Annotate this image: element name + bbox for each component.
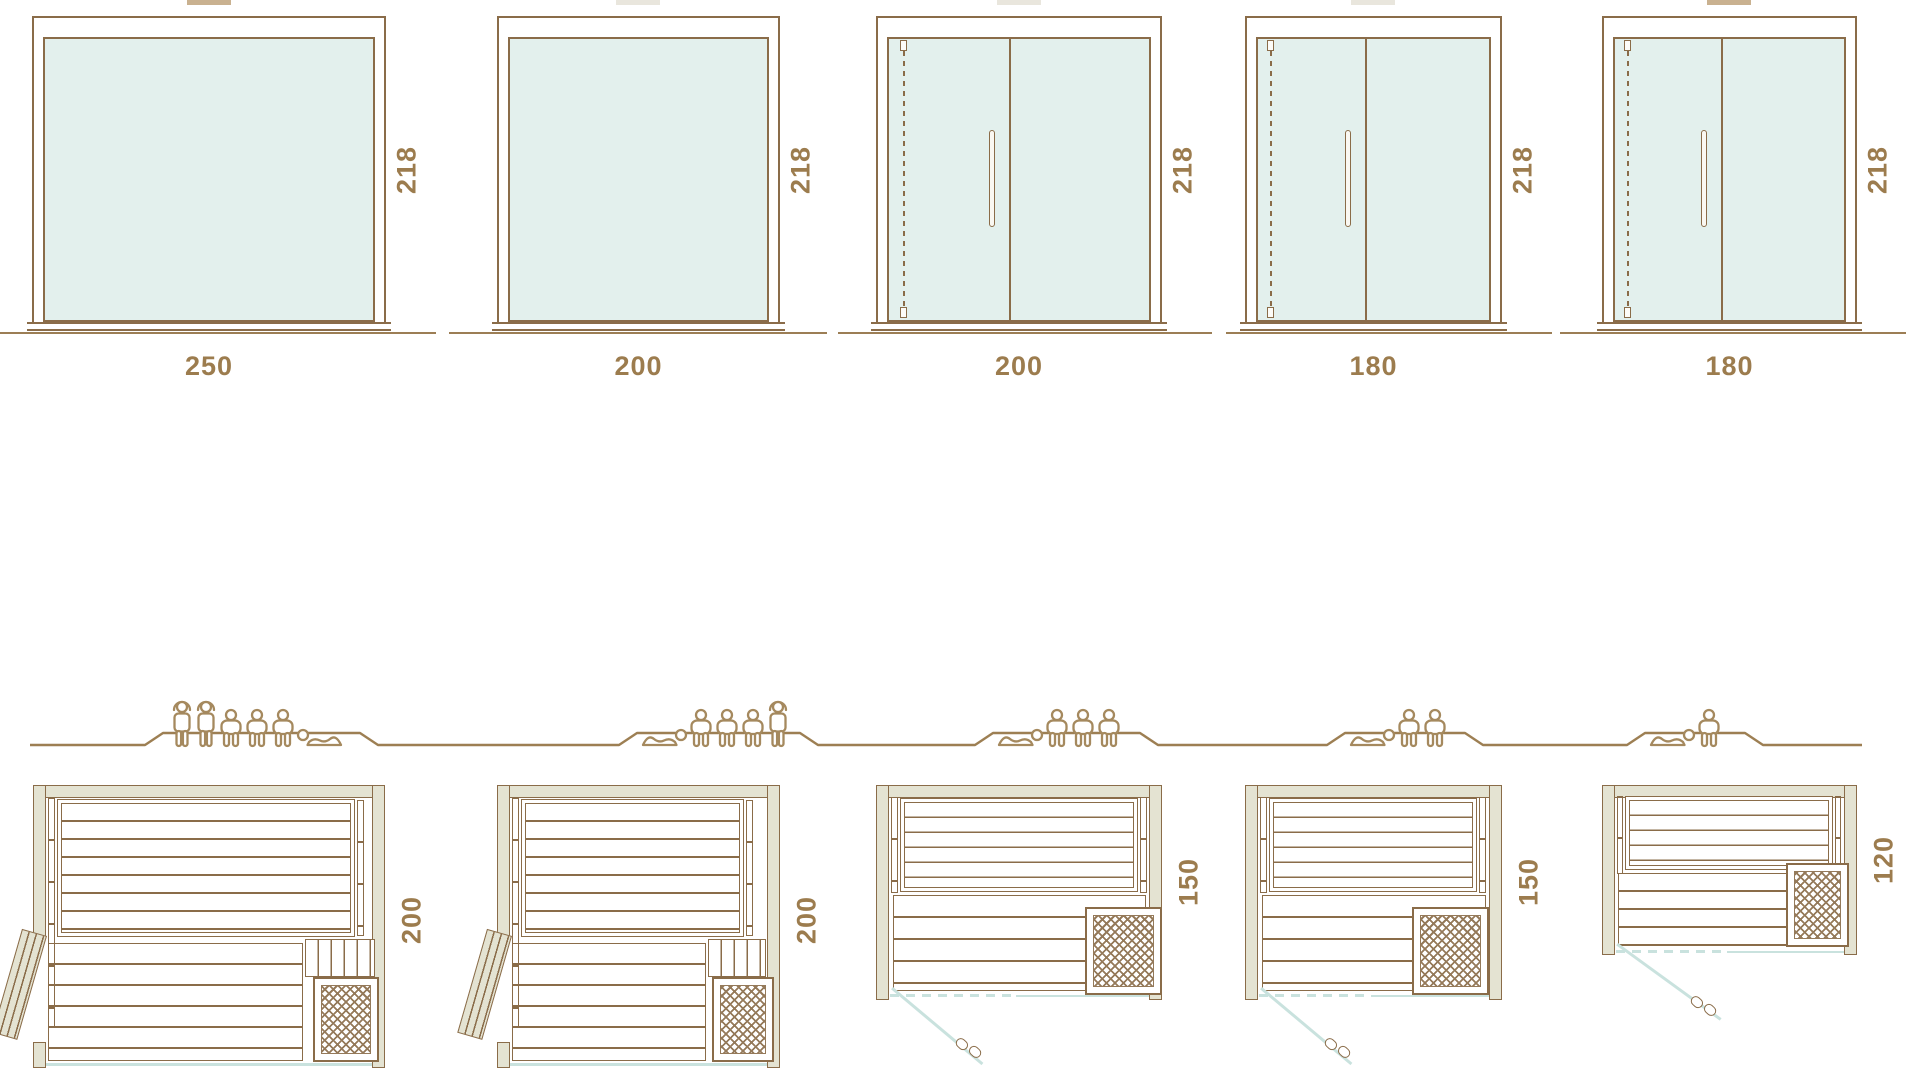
door-hinge-axis	[1270, 41, 1272, 318]
heater-icon	[1412, 907, 1489, 995]
plan-wall-left	[1245, 785, 1258, 1000]
glass-front-line	[1016, 995, 1149, 997]
heater-grille	[720, 985, 766, 1054]
glass-front-panel	[43, 37, 375, 322]
person-sitting-icon	[1074, 710, 1093, 746]
upper-bench	[57, 799, 355, 937]
door-hinge-icon	[900, 307, 907, 318]
open-door-leaf	[0, 929, 47, 1040]
bench-rail	[357, 800, 364, 936]
plan-wall-right	[1489, 785, 1502, 1000]
elevation-row: 218 218 218 218 218 250 200 200 180 180	[0, 0, 1920, 395]
open-door-leaf	[457, 929, 512, 1040]
door-handle-icon	[1323, 1034, 1353, 1062]
roof-vent-tab	[1707, 0, 1751, 5]
glass-front-line	[510, 1063, 767, 1066]
bench-rail	[1140, 797, 1147, 893]
door-hinge-axis	[903, 41, 905, 318]
width-dimension: 180	[1245, 350, 1502, 382]
plan-wall-left	[876, 785, 889, 1000]
bench-rail	[891, 797, 898, 893]
bench-rail	[746, 800, 753, 936]
plan-wall-left	[497, 785, 510, 937]
person-sitting-icon	[1700, 710, 1719, 746]
sill	[1597, 322, 1862, 331]
depth-dimension: 200	[792, 878, 822, 962]
capacity-row	[0, 690, 1920, 770]
heater-icon	[1786, 863, 1849, 947]
heater-grille	[1420, 915, 1481, 987]
height-dimension: 218	[1508, 128, 1538, 212]
upper-bench	[1269, 798, 1477, 892]
bench-rail	[1617, 796, 1623, 874]
door-hinge-icon	[1624, 307, 1631, 318]
person-standing-icon	[174, 702, 190, 746]
door-closed-dashed-line	[1616, 950, 1727, 953]
person-sitting-icon	[222, 710, 241, 746]
capacity-group	[643, 702, 786, 746]
lower-bench	[48, 943, 303, 1061]
ground-line	[449, 332, 827, 334]
bench-planks	[525, 803, 740, 933]
ground-line	[1226, 332, 1552, 334]
width-dimension: 200	[876, 350, 1162, 382]
width-dimension: 180	[1602, 350, 1857, 382]
upper-bench	[1625, 796, 1833, 870]
glass-front-panel	[508, 37, 769, 322]
plan-wall-left	[1602, 785, 1615, 955]
glass-front-line	[1727, 951, 1844, 953]
plan-row: 200 200 150 150 120	[0, 390, 1920, 690]
door-hinge-icon	[1624, 40, 1631, 51]
bench-planks	[61, 803, 351, 933]
upper-bench	[521, 799, 744, 937]
roof-vent-tab	[997, 0, 1041, 5]
heater-grille	[321, 985, 371, 1054]
door-handle-icon	[1701, 130, 1707, 227]
person-sitting-icon	[1400, 710, 1419, 746]
depth-dimension: 120	[1869, 818, 1899, 902]
bench-step	[708, 939, 766, 977]
height-dimension: 218	[786, 128, 816, 212]
sill	[27, 322, 391, 331]
bench-planks	[1273, 802, 1473, 888]
door-divider	[1365, 37, 1367, 322]
person-sitting-icon	[1426, 710, 1445, 746]
depth-dimension: 200	[397, 878, 427, 962]
lower-bench	[512, 943, 706, 1061]
ground-line	[1560, 332, 1906, 334]
capacity-group	[1651, 710, 1719, 746]
capacity-group	[174, 702, 341, 746]
person-sitting-icon	[274, 710, 293, 746]
depth-dimension: 150	[1514, 840, 1544, 924]
ground-line	[0, 332, 436, 334]
plan-wall-top	[33, 785, 385, 798]
door-handle-icon	[1345, 130, 1351, 227]
bench-planks	[1629, 800, 1829, 866]
plan-wall-top	[876, 785, 1162, 798]
door-divider	[1721, 37, 1723, 322]
sill	[871, 322, 1167, 331]
upper-bench	[900, 798, 1138, 892]
person-sitting-icon	[744, 710, 763, 746]
width-dimension: 250	[32, 350, 386, 382]
door-closed-dashed-line	[1259, 994, 1371, 997]
heater-grille	[1093, 915, 1154, 987]
glass-door-panel	[887, 37, 1151, 322]
glass-front-line	[46, 1063, 372, 1066]
plan-wall-left	[33, 785, 46, 937]
person-sitting-icon	[248, 710, 267, 746]
person-sitting-icon	[1100, 710, 1119, 746]
door-hinge-icon	[900, 40, 907, 51]
person-sitting-icon	[692, 710, 711, 746]
door-hinge-axis	[1627, 41, 1629, 318]
height-dimension: 218	[1863, 128, 1893, 212]
plan-wall-stub	[33, 1042, 46, 1068]
height-dimension: 218	[1168, 128, 1198, 212]
width-dimension: 200	[497, 350, 780, 382]
person-sitting-icon	[718, 710, 737, 746]
roof-vent-tab	[187, 0, 231, 5]
bench-rail	[1479, 797, 1486, 893]
heater-icon	[313, 977, 379, 1062]
heater-icon	[1085, 907, 1162, 995]
plan-wall-top	[497, 785, 780, 798]
door-divider	[1009, 37, 1011, 322]
heater-icon	[712, 977, 774, 1062]
bench-step	[305, 939, 375, 977]
door-handle-icon	[954, 1034, 984, 1062]
roof-vent-tab	[616, 0, 660, 5]
person-standing-icon	[770, 702, 786, 746]
bench-planks	[904, 802, 1134, 888]
person-sitting-icon	[1048, 710, 1067, 746]
capacity-group	[1351, 710, 1445, 746]
door-hinge-icon	[1267, 307, 1274, 318]
plan-wall-top	[1245, 785, 1502, 798]
person-standing-icon	[198, 702, 214, 746]
sill	[492, 322, 785, 331]
plan-wall-stub	[497, 1042, 510, 1068]
bench-rail	[1260, 797, 1267, 893]
glass-door-panel	[1613, 37, 1846, 322]
door-closed-dashed-line	[890, 994, 1016, 997]
door-handle-icon	[989, 130, 995, 227]
capacity-group	[999, 710, 1119, 746]
depth-dimension: 150	[1174, 840, 1204, 924]
sill	[1240, 322, 1507, 331]
roof-vent-tab	[1351, 0, 1395, 5]
ground-line	[838, 332, 1212, 334]
height-dimension: 218	[392, 128, 422, 212]
glass-door-panel	[1256, 37, 1491, 322]
heater-grille	[1794, 871, 1841, 939]
door-hinge-icon	[1267, 40, 1274, 51]
glass-front-line	[1371, 995, 1489, 997]
